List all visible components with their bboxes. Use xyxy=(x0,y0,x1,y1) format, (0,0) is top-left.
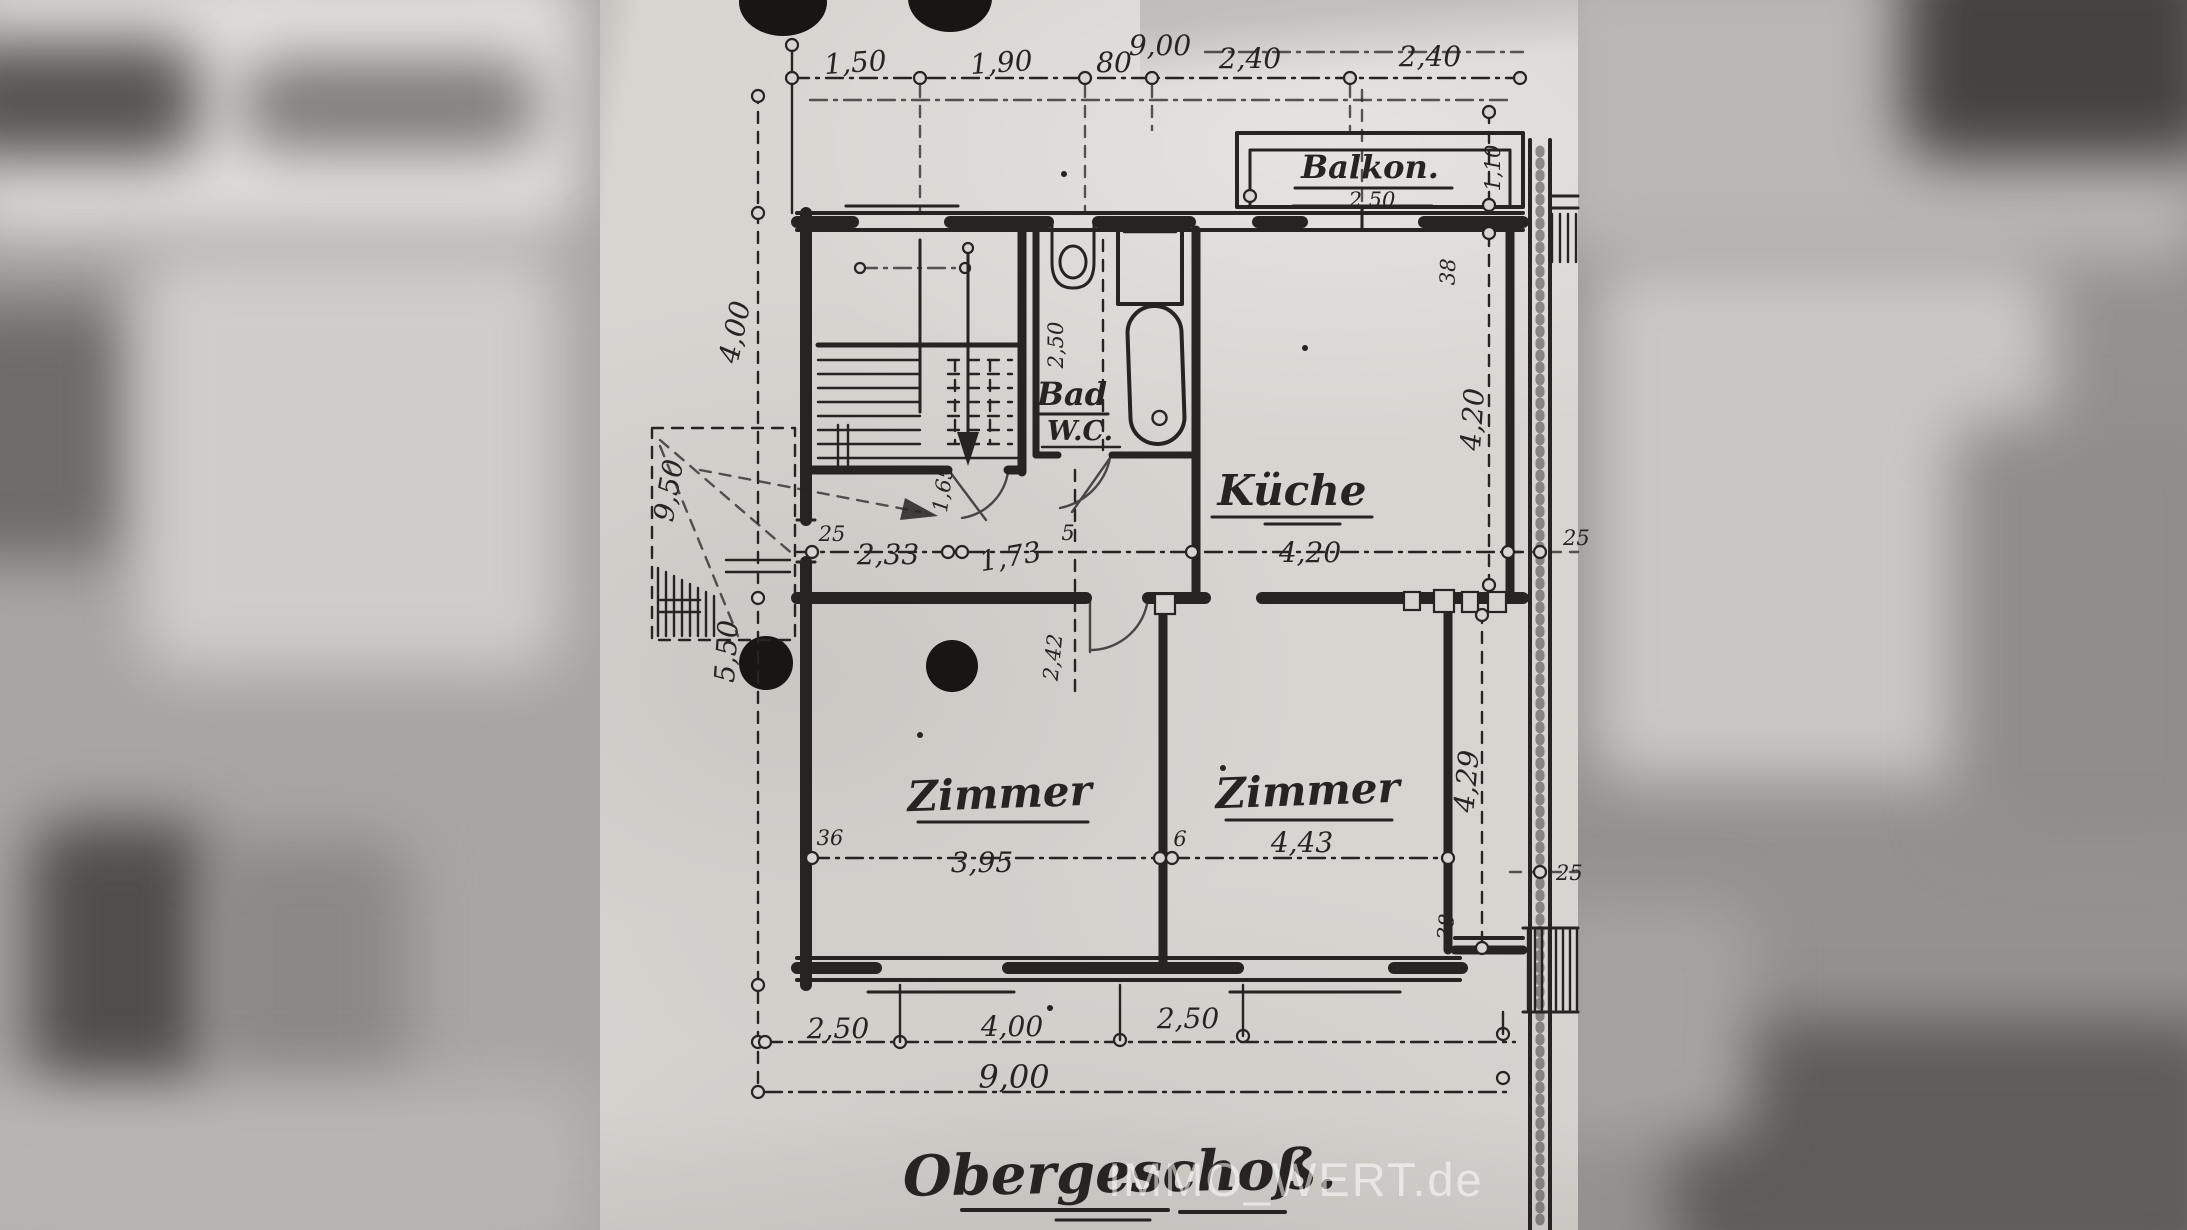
party-wall: 25 25 xyxy=(1510,140,1590,1230)
left-annex: 9,50 xyxy=(647,428,938,640)
dim-left-lower: 5,50 xyxy=(708,619,745,683)
dim-z2-width: 4,43 xyxy=(1270,826,1333,859)
room-label-bad: Bad xyxy=(1036,375,1107,413)
dim-bottom-2: 4,00 xyxy=(980,1010,1043,1043)
room-label-zimmer-right: Zimmer xyxy=(1213,763,1404,819)
dim-right-25-top: 25 xyxy=(1562,526,1590,550)
dim-top-total: 9,00 xyxy=(1129,29,1191,62)
dim-wall-25: 25 xyxy=(818,522,846,546)
balcony: Balkon. 2,50 1,10 xyxy=(1237,106,1523,212)
dim-balkon-width: 2,50 xyxy=(1348,188,1396,212)
dim-top-4: 2,40 xyxy=(1218,42,1281,75)
dim-mid-420: 4,20 xyxy=(1278,536,1341,569)
dim-door-5: 5 xyxy=(1061,521,1074,545)
shower-icon xyxy=(1118,226,1182,304)
dim-z2-6: 6 xyxy=(1173,827,1186,851)
dim-right-38-top: 38 xyxy=(1436,258,1461,286)
bathroom: 2,50 Bad W.C. xyxy=(1036,222,1185,512)
room-label-balkon: Balkon. xyxy=(1300,148,1439,186)
staircase xyxy=(818,240,1018,470)
dim-bottom-1: 2,50 xyxy=(806,1012,869,1045)
dim-right-429: 4,29 xyxy=(1447,749,1485,815)
room-right: Zimmer 6 4,43 4,29 38 xyxy=(1166,609,1488,954)
dim-hall-173: 1,73 xyxy=(977,535,1044,578)
dim-right-38-bottom: 38 xyxy=(1433,913,1460,942)
dim-top-3: 80 xyxy=(1096,46,1132,79)
dim-z1-width: 3,95 xyxy=(951,846,1013,879)
dim-hall-165: 1,65 xyxy=(928,464,958,514)
dim-z1-36: 36 xyxy=(817,826,844,850)
dim-below-242: 2,42 xyxy=(1039,633,1068,683)
ink-specks xyxy=(917,171,1308,1011)
dim-top-2: 1,90 xyxy=(969,44,1033,81)
room-label-wc: W.C. xyxy=(1047,416,1113,447)
left-dimension-column: 4,00 5,50 xyxy=(708,90,764,1098)
dim-left-total: 9,50 xyxy=(647,457,690,524)
room-label-kueche: Küche xyxy=(1217,466,1367,515)
scanned-floor-plan-photo: 9,00 1,50 1,90 80 2,40 2,40 Balkon. xyxy=(0,0,2187,1230)
dim-hall-233: 2,33 xyxy=(856,538,919,571)
floor-plan-svg: 9,00 1,50 1,90 80 2,40 2,40 Balkon. xyxy=(0,0,2187,1230)
room-label-zimmer-left: Zimmer xyxy=(905,766,1096,822)
watermark: IMMO_WERT.de xyxy=(1108,1152,1588,1207)
dim-top-1: 1,50 xyxy=(823,44,887,81)
bottom-dimension-rows: 2,50 4,00 2,50 9,00 xyxy=(759,985,1515,1096)
dim-top-5: 2,40 xyxy=(1398,40,1461,73)
dim-left-upper: 4,00 xyxy=(712,298,757,367)
dim-kitchen-420: 4,20 xyxy=(1454,387,1491,452)
dim-bath-height: 2,50 xyxy=(1044,322,1068,370)
room-left: Zimmer 36 3,95 xyxy=(806,766,1166,879)
dim-bottom-3: 2,50 xyxy=(1156,1002,1219,1035)
dim-balkon-depth: 1,10 xyxy=(1481,145,1505,192)
dim-bottom-total: 9,00 xyxy=(978,1058,1049,1096)
bathtub-icon xyxy=(1127,305,1186,445)
